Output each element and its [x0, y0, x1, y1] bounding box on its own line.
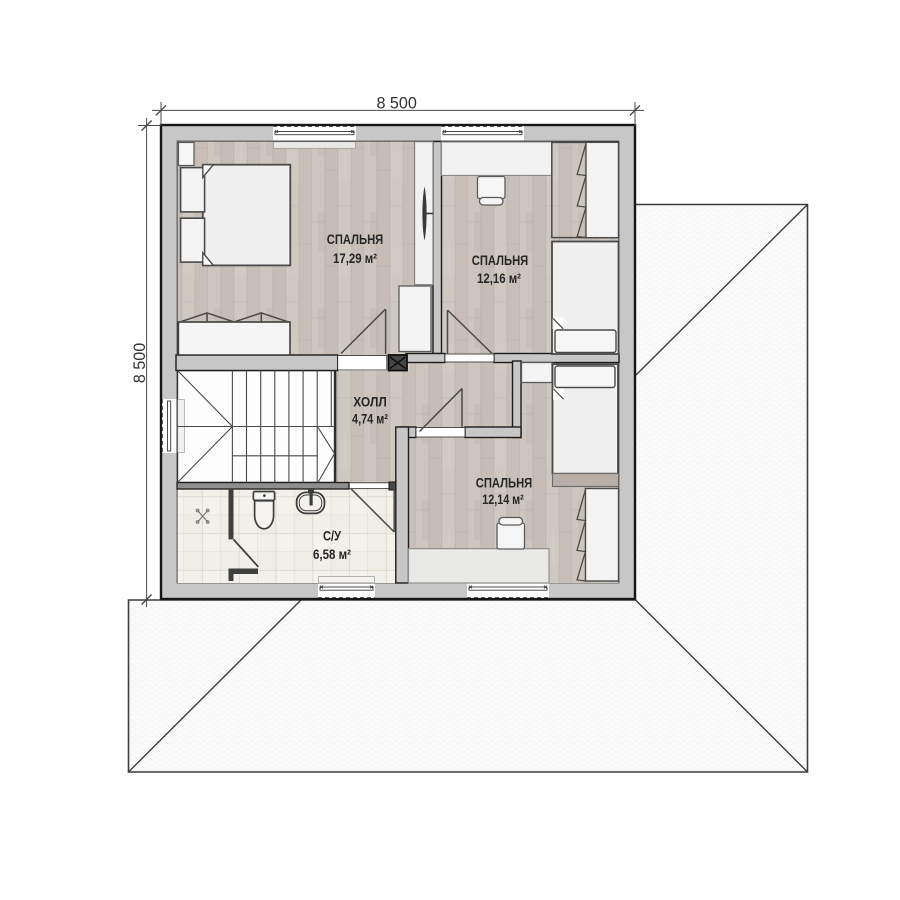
svg-text:ХОЛЛ: ХОЛЛ: [353, 395, 387, 410]
svg-text:12,16 м²: 12,16 м²: [477, 271, 521, 286]
svg-text:4,74 м²: 4,74 м²: [352, 412, 388, 427]
svg-text:12,14 м²: 12,14 м²: [482, 492, 524, 507]
svg-text:С/У: С/У: [323, 529, 342, 544]
svg-text:СПАЛЬНЯ: СПАЛЬНЯ: [476, 476, 533, 491]
svg-text:СПАЛЬНЯ: СПАЛЬНЯ: [472, 253, 529, 268]
svg-text:6,58 м²: 6,58 м²: [313, 547, 351, 562]
svg-text:8 500: 8 500: [131, 343, 149, 384]
svg-text:8 500: 8 500: [376, 95, 417, 113]
svg-text:17,29 м²: 17,29 м²: [333, 251, 377, 266]
svg-text:СПАЛЬНЯ: СПАЛЬНЯ: [327, 232, 384, 247]
